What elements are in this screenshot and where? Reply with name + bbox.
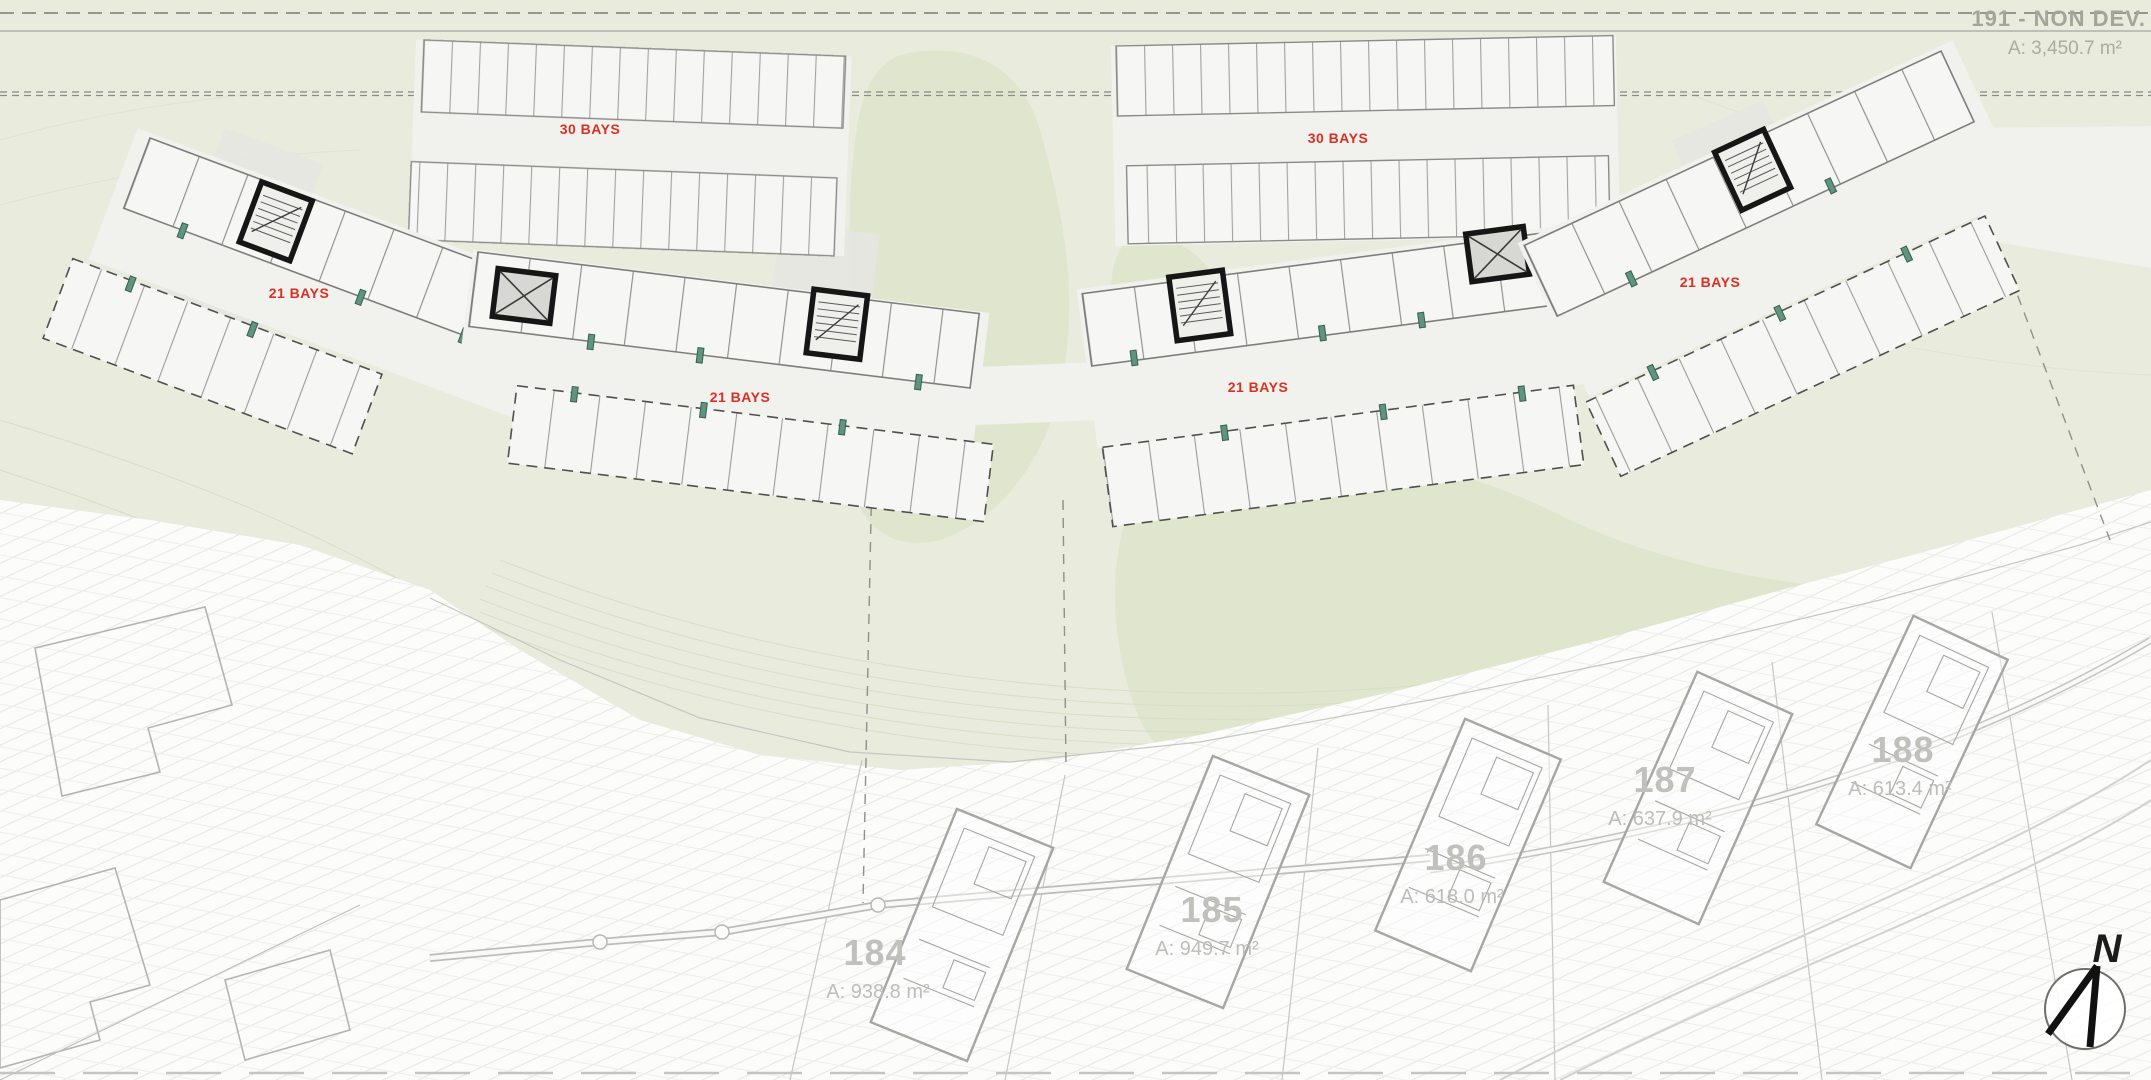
site-plan-drawing: 191 A: 10,0 30 xyxy=(0,0,2151,1080)
bay-row xyxy=(1116,36,1614,116)
north-label: N xyxy=(2093,927,2123,971)
plot-187-number: 187 xyxy=(1633,759,1696,800)
plot-188-area: A: 613.4 m² xyxy=(1848,778,1952,800)
plot-187-area: A: 637.9 m² xyxy=(1608,808,1712,830)
plot-184-number: 184 xyxy=(843,932,906,973)
bay-row xyxy=(408,162,837,256)
parcel-191-title: 191 - NON DEV. xyxy=(1971,6,2146,31)
label-21-bays-wing-mid-left: 21 BAYS xyxy=(710,389,771,405)
door-marker-icon xyxy=(696,348,704,364)
stair-core-icon xyxy=(1169,270,1231,341)
plot-186-number: 186 xyxy=(1424,837,1487,878)
door-marker-icon xyxy=(1130,350,1138,366)
parking-group-left-30 xyxy=(408,40,851,257)
door-marker-icon xyxy=(700,402,708,418)
door-marker-icon xyxy=(915,374,923,390)
site-plan-canvas: 191 A: 10,0 30 xyxy=(0,0,2151,1080)
label-21-bays-wing-mid-right: 21 BAYS xyxy=(1228,379,1289,395)
plot-186-area: A: 618.0 m² xyxy=(1400,886,1504,908)
stair-core-icon xyxy=(806,289,867,359)
label-21-bays-wing-right: 21 BAYS xyxy=(1680,274,1741,290)
label-30-bays-left: 30 BAYS xyxy=(560,121,621,137)
plot-188-number: 188 xyxy=(1871,729,1934,770)
elevator-core-icon xyxy=(492,269,555,324)
door-marker-icon xyxy=(838,419,846,435)
parcel-191-area: A: 3,450.7 m² xyxy=(2008,38,2122,59)
door-marker-icon xyxy=(1418,312,1426,328)
door-marker-icon xyxy=(1318,325,1326,341)
bay-row xyxy=(421,40,845,128)
door-marker-icon xyxy=(587,334,595,350)
label-21-bays-wing-left: 21 BAYS xyxy=(269,285,330,301)
plot-184-area: A: 938.8 m² xyxy=(826,981,930,1003)
door-marker-icon xyxy=(570,386,578,402)
elevator-core-icon xyxy=(1466,227,1530,282)
label-30-bays-right: 30 BAYS xyxy=(1308,130,1369,146)
door-marker-icon xyxy=(1221,425,1229,441)
door-marker-icon xyxy=(1379,404,1387,420)
plot-185-number: 185 xyxy=(1180,889,1243,930)
door-marker-icon xyxy=(1518,386,1526,402)
plot-185-area: A: 949.7 m² xyxy=(1155,938,1259,960)
